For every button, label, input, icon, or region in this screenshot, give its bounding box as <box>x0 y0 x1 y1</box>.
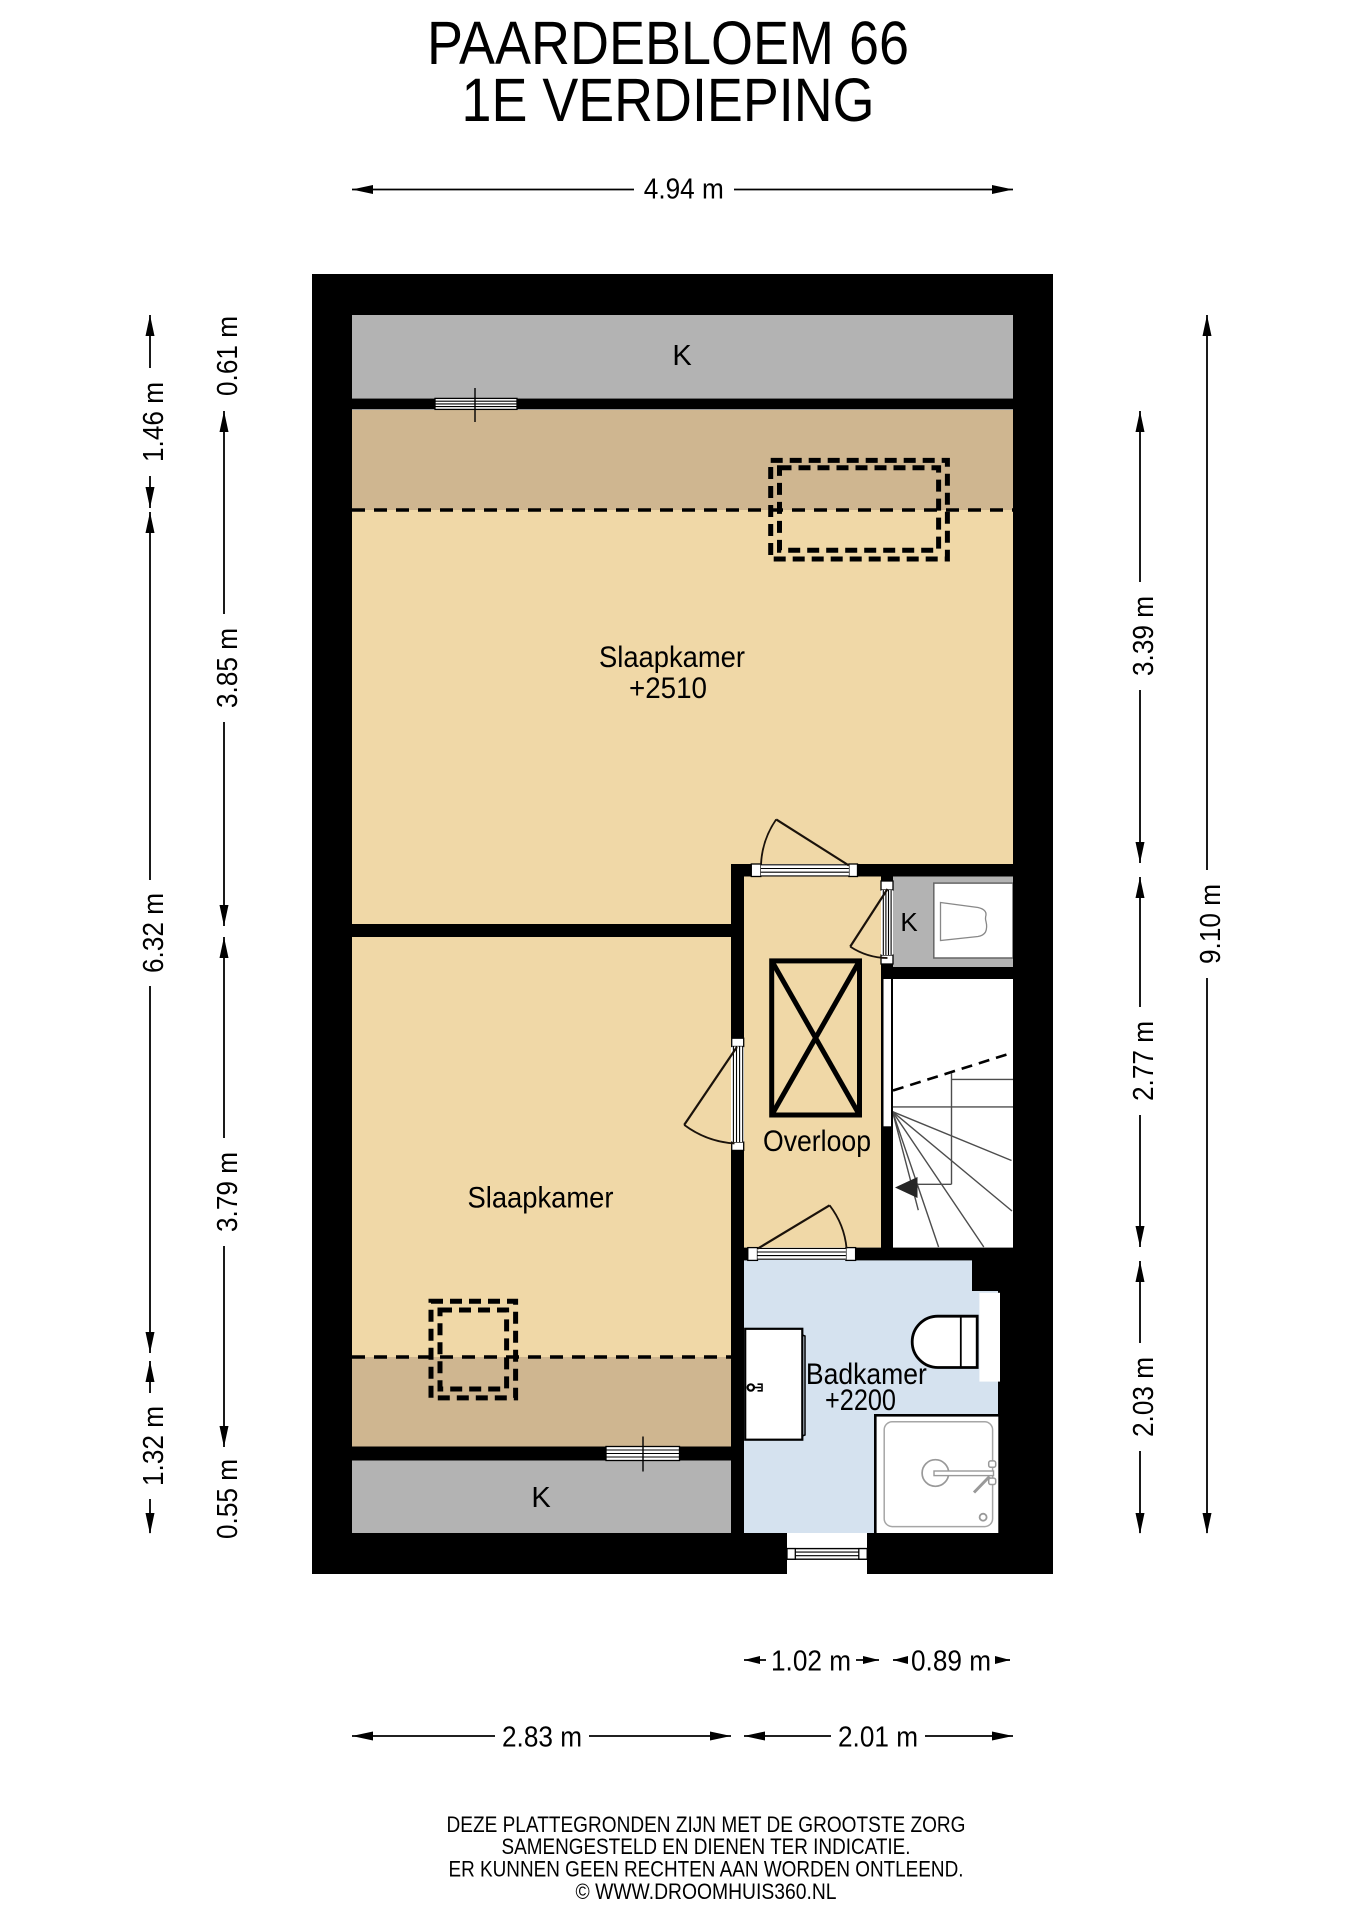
svg-text:K: K <box>531 1482 551 1514</box>
svg-text:9.10 m: 9.10 m <box>1195 884 1227 964</box>
svg-text:1.32 m: 1.32 m <box>138 1406 170 1486</box>
svg-text:SAMENGESTELD EN DIENEN TER IND: SAMENGESTELD EN DIENEN TER INDICATIE. <box>502 1834 911 1859</box>
svg-text:4.94 m: 4.94 m <box>644 173 724 205</box>
svg-text:Slaapkamer: Slaapkamer <box>468 1182 614 1215</box>
svg-text:3.85 m: 3.85 m <box>212 628 244 708</box>
svg-text:1E VERDIEPING: 1E VERDIEPING <box>462 66 875 134</box>
svg-text:3.79 m: 3.79 m <box>212 1152 244 1232</box>
svg-text:0.89 m: 0.89 m <box>911 1646 991 1678</box>
svg-text:3.39 m: 3.39 m <box>1128 596 1160 676</box>
svg-text:+2510: +2510 <box>629 672 707 705</box>
svg-text:1.02 m: 1.02 m <box>771 1646 851 1678</box>
svg-text:K: K <box>672 340 692 372</box>
svg-text:0.61 m: 0.61 m <box>212 316 244 396</box>
svg-text:Overloop: Overloop <box>763 1125 871 1158</box>
svg-text:6.32 m: 6.32 m <box>138 893 170 973</box>
svg-text:2.77 m: 2.77 m <box>1128 1021 1160 1101</box>
svg-text:1.46 m: 1.46 m <box>138 382 170 462</box>
svg-text:2.01 m: 2.01 m <box>838 1722 918 1754</box>
svg-text:2.03 m: 2.03 m <box>1128 1357 1160 1437</box>
svg-text:2.83 m: 2.83 m <box>502 1722 582 1754</box>
svg-text:© WWW.DROOMHUIS360.NL: © WWW.DROOMHUIS360.NL <box>576 1879 837 1904</box>
svg-text:Slaapkamer: Slaapkamer <box>599 641 745 674</box>
svg-text:0.55 m: 0.55 m <box>212 1459 244 1539</box>
svg-text:K: K <box>900 907 918 937</box>
svg-text:ER KUNNEN GEEN RECHTEN AAN WOR: ER KUNNEN GEEN RECHTEN AAN WORDEN ONTLEE… <box>449 1857 964 1882</box>
svg-text:+2200: +2200 <box>825 1384 896 1417</box>
